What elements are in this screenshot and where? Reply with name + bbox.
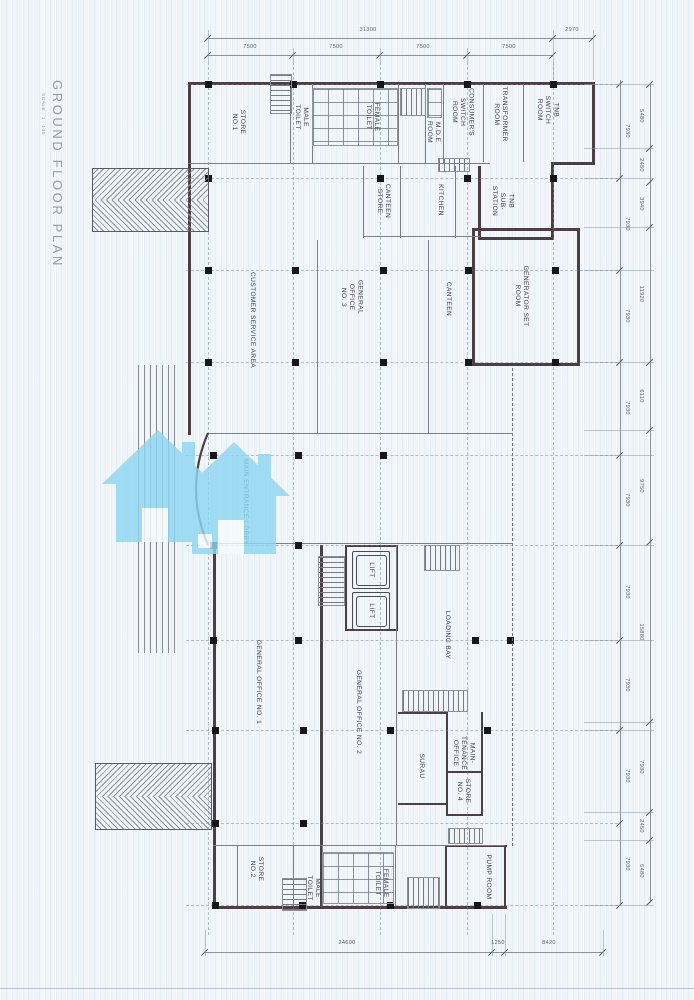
drawing-title: GROUND FLOOR PLAN	[50, 80, 65, 268]
column-marker	[380, 359, 387, 366]
partition-line	[317, 240, 318, 433]
dim-right-outer-1: 5480	[638, 109, 644, 123]
fixture-grid	[312, 88, 398, 146]
dimension-line	[553, 38, 593, 39]
partition-line	[237, 845, 238, 906]
wall-segment	[398, 712, 448, 714]
extension-line	[584, 178, 654, 179]
extension-line	[584, 148, 654, 149]
column-marker	[300, 727, 307, 734]
column-marker	[387, 727, 394, 734]
extension-line	[467, 48, 468, 62]
wall-segment	[577, 228, 580, 366]
dim-top-bay-3: 7500	[416, 44, 430, 50]
dimension-line	[208, 38, 553, 39]
room-label-mde-room: M.D.E ROOM	[425, 121, 441, 143]
column-marker	[300, 820, 307, 827]
ramp-hatch-lower	[96, 797, 211, 830]
extension-line	[0, 988, 694, 989]
dim-right-inner-6: 7930	[624, 585, 630, 599]
column-marker	[292, 267, 299, 274]
room-label-tnb-switch-room: TNB SWITCH ROOM	[535, 96, 560, 124]
grid-line-vertical	[553, 62, 554, 935]
extension-line	[584, 362, 654, 363]
dim-right-inner-8: 7930	[624, 769, 630, 783]
column-marker	[295, 637, 302, 644]
room-label-generator-set-room: GENERATOR SET ROOM	[513, 265, 529, 326]
column-marker	[377, 81, 384, 88]
extension-line	[584, 722, 654, 723]
room-label-pump-room: PUMP ROOM	[484, 855, 492, 900]
staircase	[282, 878, 307, 911]
dim-top-bay-2: 7500	[329, 44, 343, 50]
grid-line-horizontal	[186, 905, 618, 906]
partition-line	[400, 166, 401, 238]
grid-line-horizontal	[186, 730, 618, 731]
wall-segment	[188, 82, 191, 435]
column-marker	[550, 81, 557, 88]
column-marker	[465, 359, 472, 366]
dim-right-inner-4: 7930	[624, 401, 630, 415]
partition-line	[213, 845, 505, 846]
wall-segment	[478, 237, 554, 240]
column-marker	[205, 267, 212, 274]
dim-right-inner-7: 7930	[624, 678, 630, 692]
wall-segment	[446, 771, 483, 773]
dimension-line	[650, 84, 651, 902]
extension-line	[584, 730, 654, 731]
dim-top-overall-31300: 31300	[359, 27, 376, 33]
partition-line	[443, 84, 444, 164]
floor-plan-scan: GROUND FLOOR PLAN SCALE : 1 : 100 STORE …	[0, 0, 694, 1000]
room-label-male-toilet-bottom: MALE TOILET	[305, 875, 321, 900]
extension-line	[584, 227, 654, 228]
room-label-store-no-2: STORE NO.2	[248, 857, 264, 882]
wall-segment	[213, 906, 507, 909]
dimension-line	[620, 80, 621, 905]
dim-right-inner-5: 7930	[624, 493, 630, 507]
column-marker	[552, 267, 559, 274]
extension-line	[584, 812, 654, 813]
fixture-grid	[427, 88, 442, 118]
watermark-window-right	[198, 534, 212, 548]
dim-right-outer-10: 5480	[638, 864, 644, 878]
partition-line	[455, 166, 456, 238]
column-marker	[212, 902, 219, 909]
loading-bay-boundary	[512, 368, 513, 846]
wall-segment	[592, 82, 595, 164]
extension-line	[584, 545, 654, 546]
wall-segment	[504, 845, 506, 909]
wall-segment	[553, 162, 595, 165]
room-label-lift-lower: LIFT	[367, 603, 375, 618]
room-label-surau: SURAU	[417, 753, 425, 778]
column-marker	[380, 452, 387, 459]
column-marker	[212, 820, 219, 827]
column-marker	[292, 359, 299, 366]
partition-line	[523, 84, 524, 162]
hatched-ramp	[92, 168, 209, 232]
grid-line-horizontal	[186, 823, 618, 824]
room-label-female-toilet-bottom: FEMALE TOILET	[373, 869, 389, 898]
room-label-female-toilet-top: FEMALE TOILET	[364, 103, 380, 132]
staircase	[407, 877, 440, 909]
dim-bottom-8420: 8420	[542, 940, 556, 946]
dim-right-inner-1: 7930	[624, 124, 630, 138]
room-label-maintenance-office: MAIN- TENANCE OFFICE	[451, 736, 476, 770]
room-label-store-no-1: STORE NO.1	[230, 110, 246, 135]
room-label-general-office-1: GENERAL OFFICE NO. 1	[254, 640, 262, 724]
dim-top-overall-2970: 2970	[565, 27, 579, 33]
watermark-door-right	[218, 520, 244, 554]
partition-line	[396, 545, 397, 845]
column-marker	[474, 902, 481, 909]
column-marker	[550, 175, 557, 182]
extension-line	[492, 914, 493, 956]
extension-line	[584, 430, 654, 431]
extension-line	[293, 48, 294, 62]
extension-line	[584, 84, 654, 85]
extension-line	[553, 30, 554, 80]
house-logo-watermark	[98, 424, 316, 566]
dim-right-outer-5: 6110	[638, 389, 644, 402]
extension-line	[603, 930, 604, 956]
dim-right-outer-9: 2450	[638, 819, 644, 833]
dim-right-outer-6: 9750	[638, 479, 644, 493]
room-label-store-no-4: STORE NO. 4	[455, 779, 471, 804]
extension-line	[205, 930, 206, 956]
dim-right-outer-2: 2450	[638, 158, 644, 172]
dim-right-outer-8: 7930	[638, 760, 644, 774]
partition-line	[363, 166, 364, 238]
ramp-hatch-upper	[93, 169, 208, 200]
wall-segment	[472, 228, 475, 366]
column-marker	[210, 637, 217, 644]
room-label-canteen-store: CANTEEN STORE	[375, 184, 391, 218]
staircase	[402, 690, 468, 712]
staircase	[270, 74, 292, 114]
room-label-loading-bay: LOADING BAY	[443, 611, 451, 660]
column-marker	[472, 637, 479, 644]
extension-line	[505, 914, 506, 956]
column-marker	[464, 81, 471, 88]
staircase	[424, 545, 460, 571]
staircase	[448, 828, 483, 844]
extension-line	[380, 48, 381, 62]
dim-right-inner-3: 7930	[624, 309, 630, 323]
column-marker	[377, 175, 384, 182]
dim-right-inner-2: 7930	[624, 217, 630, 231]
drawing-scale-note: SCALE : 1 : 100	[40, 93, 45, 135]
wall-segment	[398, 803, 448, 805]
column-marker	[212, 727, 219, 734]
wall-segment	[446, 814, 483, 816]
column-marker	[380, 267, 387, 274]
watermark-door-left	[142, 508, 168, 542]
grid-line-vertical	[467, 62, 468, 935]
room-label-customer-service-area: CUSTOMER SERVICE AREA	[248, 272, 256, 368]
hatched-ramp	[95, 763, 212, 830]
partition-line	[483, 84, 484, 162]
ramp-hatch-upper	[96, 764, 211, 797]
staircase	[318, 556, 345, 606]
staircase	[400, 88, 426, 116]
partition-line	[395, 845, 396, 906]
extension-line	[584, 455, 654, 456]
column-marker	[484, 727, 491, 734]
extension-line	[584, 840, 654, 841]
extension-line	[584, 270, 654, 271]
dimension-line	[205, 952, 603, 953]
room-label-tnb-substation: TNB SUB- STATION	[490, 186, 515, 216]
column-marker	[465, 267, 472, 274]
room-label-male-toilet-top: MALE TOILET	[293, 104, 309, 129]
room-label-consumers-switch-room: CONSUMER'S SWITCH ROOM	[450, 88, 475, 136]
dim-right-outer-7: 15880	[638, 623, 644, 640]
dim-bottom-1250: 1250	[491, 940, 505, 946]
dim-right-outer-3: 3940	[638, 197, 644, 211]
wall-segment	[472, 228, 580, 231]
wall-segment	[472, 363, 580, 366]
dim-right-outer-4: 11920	[638, 286, 644, 303]
partition-line	[428, 240, 429, 433]
room-label-general-office-3: GENERAL OFFICE NO. 3	[339, 280, 364, 314]
ramp-hatch-lower	[93, 200, 208, 231]
dim-top-bay-4: 7500	[502, 44, 516, 50]
wall-segment	[446, 712, 448, 816]
extension-line	[584, 905, 654, 906]
wall-segment	[445, 845, 447, 907]
column-marker	[552, 359, 559, 366]
room-label-general-office-2: GENERAL OFFICE NO. 2	[354, 670, 362, 754]
room-label-lift-upper: LIFT	[367, 562, 375, 577]
dim-top-bay-1: 7500	[243, 44, 257, 50]
partition-line	[398, 84, 399, 164]
grid-line-horizontal	[186, 640, 618, 641]
staircase	[438, 158, 470, 172]
column-marker	[464, 175, 471, 182]
dim-bottom-24600: 24600	[338, 940, 355, 946]
extension-line	[208, 30, 209, 62]
extension-line	[593, 30, 594, 80]
wall-segment	[345, 545, 347, 631]
dim-right-inner-9: 7930	[624, 857, 630, 871]
room-label-canteen: CANTEEN	[444, 282, 452, 316]
room-label-transformer-room: TRANSFORMER ROOM	[492, 86, 508, 141]
column-marker	[205, 359, 212, 366]
column-marker	[205, 81, 212, 88]
room-label-kitchen: KITCHEN	[436, 184, 444, 216]
